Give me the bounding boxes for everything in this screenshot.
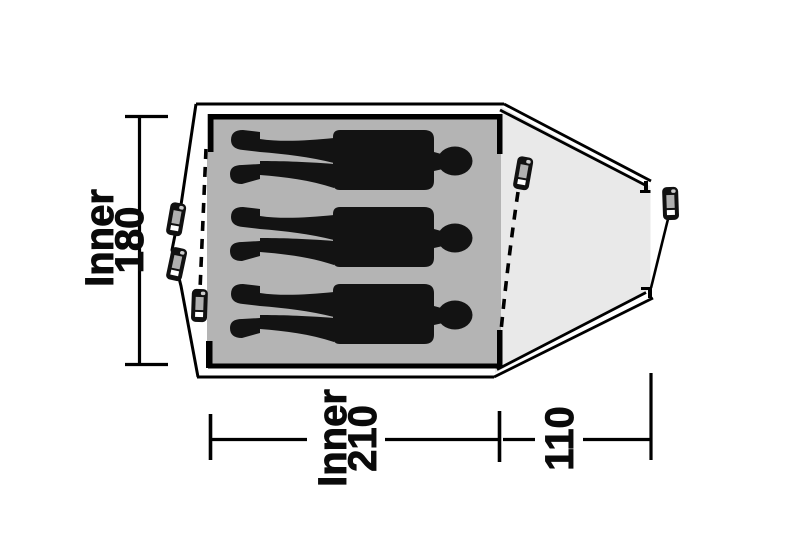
svg-text:110: 110	[538, 406, 582, 471]
svg-text:210: 210	[341, 405, 385, 472]
svg-text:180: 180	[108, 207, 152, 274]
